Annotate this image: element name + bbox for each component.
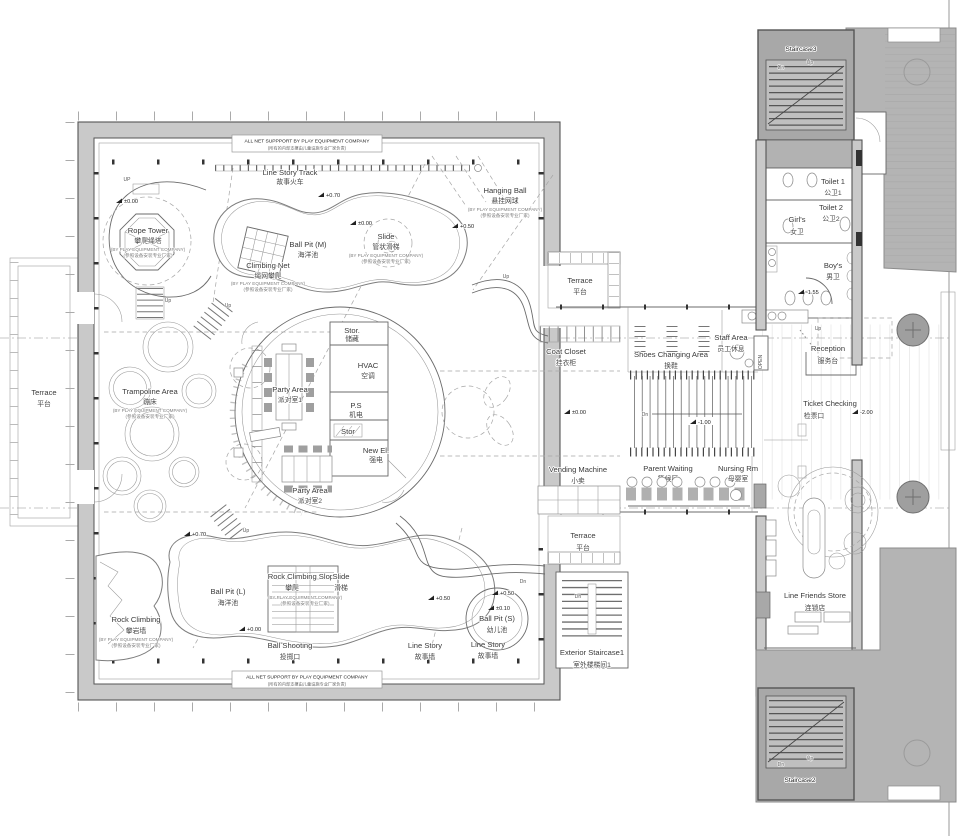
svg-text:(所有的内部支撑由儿童设施专业厂家负责): (所有的内部支撑由儿童设施专业厂家负责) [268,145,347,152]
svg-text:攀爬绳塔: 攀爬绳塔 [134,236,161,245]
svg-text:室外楼梯间1: 室外楼梯间1 [573,660,611,669]
svg-text:(BY PLAY EQUIPMENT COMPANY): (BY PLAY EQUIPMENT COMPANY) [99,637,174,642]
svg-text:公卫1: 公卫1 [824,189,842,197]
svg-text:储藏: 储藏 [345,334,359,343]
svg-text:+0.50: +0.50 [436,596,450,602]
svg-text:换鞋: 换鞋 [664,361,678,370]
west-terrace: Terrace 平台 [10,258,78,526]
svg-text:Dn: Dn [520,579,527,585]
svg-text:挂衣柜: 挂衣柜 [556,358,577,367]
svg-text:攀爬: 攀爬 [285,583,299,592]
svg-text:Dn: Dn [642,412,649,418]
svg-text:Shoes Changing Area: Shoes Changing Area [634,350,709,359]
svg-text:海洋池: 海洋池 [298,250,319,259]
entry-corridor: Terrace 平台 Coat Closet 挂衣柜 Shoes Changin… [538,252,766,669]
svg-text:小卖: 小卖 [571,476,585,485]
svg-text:+0.00: +0.00 [247,627,261,633]
svg-text:Slide: Slide [333,572,350,581]
svg-text:ALL NET SUPPPORT BY PLAY EQUIP: ALL NET SUPPPORT BY PLAY EQUIPMENT COMPA… [245,139,371,145]
svg-text:悬挂网球: 悬挂网球 [491,196,518,205]
east-wing: Staircase3 Up Dn Toilet 1 公卫1 Toilet 2 公… [742,28,956,802]
svg-text:Stor: Stor [341,427,355,436]
svg-text:母婴室: 母婴室 [728,474,749,483]
svg-text:Ball Pit (S): Ball Pit (S) [479,614,515,623]
svg-text:Rock Climbing: Rock Climbing [112,615,161,624]
svg-text:Staircase2: Staircase2 [784,777,815,784]
svg-text:(BY PLAY EQUIPMENT COMPANY): (BY PLAY EQUIPMENT COMPANY) [268,595,343,600]
svg-text:(参照设备安装专业厂家): (参照设备安装专业厂家) [362,258,411,265]
floor-plan-drawing: Terrace 平台 ALL NET SUPPPORT BY PLAY EQUI… [0,0,960,836]
west-terrace-label: Terrace 平台 [31,388,56,408]
svg-text:强电: 强电 [369,455,383,464]
svg-text:Toilet 2: Toilet 2 [819,203,843,212]
svg-text:±0.00: ±0.00 [358,221,372,227]
ball-pit-m: Ball Pit (M) 海洋池 [214,193,467,292]
net-support-banner-bottom: ALL NET SUPPORT BY PLAY EQUIPMENT COMPAN… [232,671,382,688]
svg-text:平台: 平台 [573,287,587,296]
svg-text:(BY PLAY EQUIPMENT COMPANY): (BY PLAY EQUIPMENT COMPANY) [231,281,306,286]
svg-text:Rock Climbing Slope: Rock Climbing Slope [268,572,338,581]
svg-text:Girl's: Girl's [788,215,805,224]
svg-text:Up: Up [243,528,250,534]
svg-text:女卫: 女卫 [790,227,804,236]
tree-icons [897,314,929,513]
svg-text:绳网攀爬: 绳网攀爬 [254,271,281,280]
svg-text:Up: Up [225,303,232,309]
svg-text:Up: Up [503,274,510,280]
svg-text:Dn: Dn [778,762,785,768]
svg-text:-1.55: -1.55 [806,290,819,296]
toilets: Toilet 1 公卫1 Toilet 2 公卫2 Girl's 女卫 Boy'… [764,140,856,318]
svg-text:ALL NET SUPPORT BY PLAY EQUIPM: ALL NET SUPPORT BY PLAY EQUIPMENT COMPAN… [246,675,368,681]
svg-text:公卫2: 公卫2 [822,215,840,223]
svg-text:(BY PLAY EQUIPMENT COMPANY): (BY PLAY EQUIPMENT COMPANY) [111,247,186,252]
svg-text:Ball Pit (M): Ball Pit (M) [289,240,327,249]
svg-text:-1.00: -1.00 [698,420,711,426]
entrance-steps: Dn -1.00 [630,375,757,452]
svg-text:故事墙: 故事墙 [415,652,436,661]
svg-text:Exterior Staircase1: Exterior Staircase1 [560,648,624,657]
net-support-banner-top: ALL NET SUPPPORT BY PLAY EQUIPMENT COMPA… [232,135,382,152]
svg-text:±0.00: ±0.00 [572,410,586,416]
svg-text:+0.50: +0.50 [460,224,474,230]
svg-text:故事墙: 故事墙 [478,651,499,660]
svg-text:Vending Machine: Vending Machine [549,465,607,474]
svg-text:派对室2: 派对室2 [298,496,322,505]
svg-text:Line Story: Line Story [408,641,442,650]
svg-text:Dn: Dn [575,594,582,600]
svg-text:P.S: P.S [350,401,361,410]
svg-text:平台: 平台 [37,399,51,408]
svg-text:New El.: New El. [363,446,389,455]
svg-text:+0.70: +0.70 [192,532,206,538]
svg-text:蹦床: 蹦床 [143,397,157,406]
floor-plan-canvas: Terrace 平台 ALL NET SUPPPORT BY PLAY EQUI… [0,0,960,836]
svg-text:空调: 空调 [361,371,375,380]
svg-text:(参照设备安装专业厂家): (参照设备安装专业厂家) [481,212,530,219]
svg-text:管状滑梯: 管状滑梯 [372,242,399,251]
svg-text:HVAC: HVAC [358,361,379,370]
svg-text:幼儿池: 幼儿池 [487,625,508,634]
svg-text:Toilet 1: Toilet 1 [821,177,845,186]
svg-text:+0.50: +0.50 [500,591,514,597]
svg-text:连锁店: 连锁店 [805,603,826,612]
svg-text:Ball Pit (L): Ball Pit (L) [210,587,245,596]
svg-text:(参照设备安装专业厂家): (参照设备安装专业厂家) [244,286,293,293]
svg-text:(参照设备安装专业厂家): (参照设备安装专业厂家) [126,413,175,420]
svg-text:Staff Area: Staff Area [714,333,748,342]
svg-text:+0.70: +0.70 [326,193,340,199]
svg-text:Up: Up [165,298,172,304]
svg-text:Slide: Slide [378,232,395,241]
svg-text:派对室1: 派对室1 [278,395,302,404]
svg-text:-2.00: -2.00 [860,410,873,416]
svg-text:Terrace: Terrace [570,531,595,540]
svg-text:海洋池: 海洋池 [218,598,239,607]
svg-text:攀岩墙: 攀岩墙 [126,626,147,635]
svg-text:Line Friends Store: Line Friends Store [784,591,846,600]
svg-text:员工休息: 员工休息 [717,344,744,353]
vending-machine: Vending Machine 小卖 [538,465,620,514]
svg-text:Rope Tower: Rope Tower [128,226,169,235]
svg-text:(参照设备安装专业厂家): (参照设备安装专业厂家) [281,600,330,607]
svg-text:(BY PLAY EQUIPMENT COMPANY): (BY PLAY EQUIPMENT COMPANY) [349,253,424,258]
exterior-staircase-1: Dn Exterior Staircase1 室外楼梯间1 [556,572,628,669]
svg-text:Stor.: Stor. [344,326,360,335]
svg-text:Coat Closet: Coat Closet [546,347,587,356]
svg-text:滑梯: 滑梯 [334,583,348,592]
svg-text:Up: Up [807,756,814,762]
svg-text:(所有的内部支撑由儿童设施专业厂家负责): (所有的内部支撑由儿童设施专业厂家负责) [268,681,347,688]
svg-text:Climbing Net: Climbing Net [246,261,290,270]
svg-text:OPEN: OPEN [758,355,764,370]
svg-text:(BY PLAY EQUIPMENT COMPANY): (BY PLAY EQUIPMENT COMPANY) [468,207,543,212]
svg-text:±0.10: ±0.10 [496,606,510,612]
svg-text:Ticket Checking: Ticket Checking [803,399,857,408]
svg-text:男卫: 男卫 [826,273,840,281]
svg-text:Dn: Dn [778,65,785,71]
svg-text:±0.00: ±0.00 [124,199,138,205]
svg-text:Terrace: Terrace [567,276,592,285]
svg-text:Parent Waiting: Parent Waiting [643,464,693,473]
svg-text:机电: 机电 [349,410,363,419]
svg-text:Terrace: Terrace [31,388,56,397]
svg-text:Hanging Ball: Hanging Ball [483,186,526,195]
svg-text:UP: UP [124,177,132,183]
svg-text:服务台: 服务台 [818,356,839,365]
ball-pit-l-blob: Ball Pit (L) 海洋池 [168,532,495,647]
svg-text:Line Story Track: Line Story Track [263,168,318,177]
svg-text:Staircase3: Staircase3 [785,46,816,53]
svg-text:故事火车: 故事火车 [276,177,303,186]
svg-text:检票口: 检票口 [804,411,824,420]
svg-text:Party Area: Party Area [272,385,308,394]
svg-text:平台: 平台 [576,543,590,552]
svg-text:(参照设备安装专业厂家): (参照设备安装专业厂家) [124,252,173,259]
svg-text:Reception: Reception [811,344,845,353]
svg-text:Trampoline Area: Trampoline Area [122,387,178,396]
svg-text:Ball Shooting: Ball Shooting [268,641,313,650]
svg-text:Party Area: Party Area [292,486,328,495]
staircase-3: Staircase3 Up Dn [758,30,854,140]
staircase-2: Up Dn Staircase2 [758,688,854,800]
svg-text:(参照设备安装专业厂家): (参照设备安装专业厂家) [112,642,161,649]
svg-text:(BY PLAY EQUIPMENT COMPANY): (BY PLAY EQUIPMENT COMPANY) [113,408,188,413]
svg-text:Boy's: Boy's [824,261,843,270]
svg-text:Up: Up [807,60,814,66]
svg-text:投掷口: 投掷口 [280,652,300,661]
